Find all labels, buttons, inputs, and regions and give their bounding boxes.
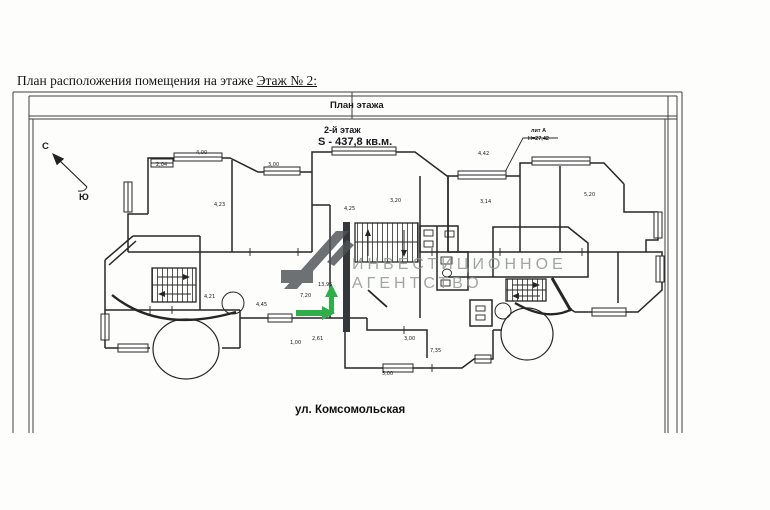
compass-south-label: Ю [79, 192, 89, 203]
total-area-label: S - 437,8 кв.м. [318, 136, 392, 148]
location-highlight [296, 284, 338, 320]
lit-leader-line [505, 138, 558, 172]
watermark-text-line2: АГЕНТСТВО [352, 275, 483, 293]
shaft-wall [343, 222, 350, 332]
scanned-document-page: { "title": { "prefix": "План расположени… [0, 0, 770, 510]
building-height-label: Н=27,42 [528, 136, 549, 142]
street-name-label: ул. Комсомольская [295, 404, 405, 416]
watermark-text-line1: ИНВЕСТИЦИОННОЕ [352, 256, 567, 274]
floor-reference: Этаж № 2: [257, 73, 317, 88]
page-title: План расположения помещения на этаже Эта… [17, 73, 317, 89]
building-letter-label: лит А [531, 128, 546, 134]
compass-icon [52, 153, 87, 191]
plan-band-title: План этажа [330, 100, 384, 111]
floor-number-label: 2-й этаж [324, 125, 361, 135]
compass-north-label: С [42, 141, 49, 152]
location-arrow-up [325, 284, 338, 313]
